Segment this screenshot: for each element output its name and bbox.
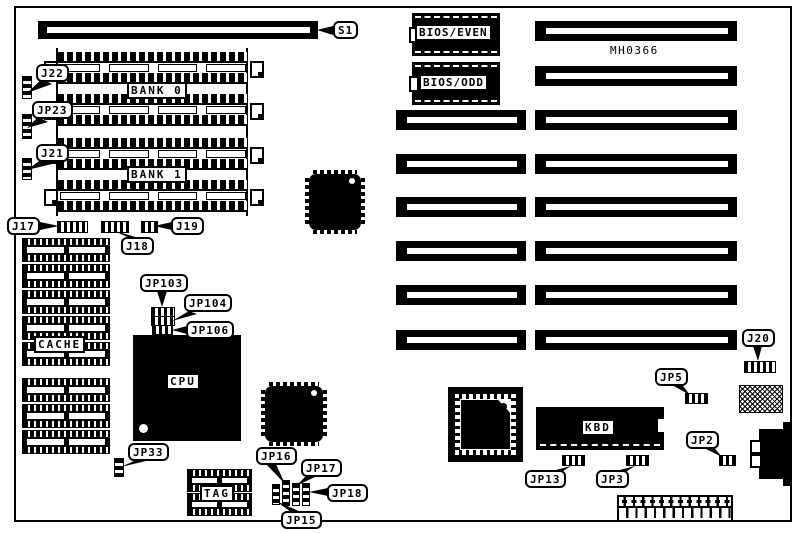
chip-notch — [658, 419, 664, 432]
callout-jp17: JP17 — [301, 459, 342, 477]
expansion-slot — [535, 154, 737, 174]
label-tag: TAG — [200, 485, 234, 502]
callout-jp3: JP3 — [596, 470, 629, 488]
jumper-j21 — [22, 158, 32, 180]
motherboard-diagram: S1 J22 JP23 J21 J17 J18 J19 JP103 JP104 … — [0, 0, 799, 533]
callout-jp33: JP33 — [128, 443, 169, 461]
jumper-jp2 — [719, 455, 736, 466]
pin-stripe — [58, 138, 248, 149]
cache-chip — [22, 404, 110, 428]
switch-s1-bar — [38, 21, 318, 39]
plcc-chip — [448, 387, 523, 462]
simm-modules — [58, 149, 248, 159]
simm-latch — [250, 103, 264, 120]
pin1-dot — [500, 403, 507, 410]
label-cache: CACHE — [34, 336, 85, 353]
expansion-slot — [396, 197, 526, 217]
callout-jp5: JP5 — [655, 368, 688, 386]
jumper-jp13 — [562, 455, 585, 466]
expansion-slot — [535, 21, 737, 41]
connector-tab — [750, 440, 762, 454]
pin1-dot — [311, 390, 317, 396]
callout-jp18: JP18 — [327, 484, 368, 502]
cache-chip — [22, 378, 110, 402]
callout-jp104: JP104 — [184, 294, 232, 312]
jumper-jp106 — [152, 325, 173, 335]
label-bios-odd: BIOS/ODD — [419, 74, 488, 91]
expansion-slot — [535, 330, 737, 350]
callout-jp106: JP106 — [186, 321, 234, 339]
callout-s1: S1 — [333, 21, 358, 39]
callout-j17: J17 — [7, 217, 40, 235]
expansion-slot — [396, 285, 526, 305]
power-connector — [617, 495, 733, 522]
simm-modules — [58, 105, 248, 115]
jumper-jp18 — [302, 483, 310, 506]
callout-jp16: JP16 — [256, 447, 297, 465]
connector-step — [783, 422, 792, 431]
pin-stripe — [58, 52, 248, 63]
callout-jp2: JP2 — [686, 431, 719, 449]
simm-latch — [250, 189, 264, 206]
simm-modules — [58, 191, 248, 201]
chip-notch — [409, 76, 419, 92]
simm-socket — [58, 180, 248, 212]
jumper-j22 — [22, 76, 32, 99]
qfp-chip — [261, 382, 327, 446]
simm-memory-area — [44, 48, 264, 216]
jumper-jp23 — [22, 114, 32, 139]
callout-j22: J22 — [36, 64, 69, 82]
simm-latch — [250, 147, 264, 164]
power-teeth — [619, 506, 731, 518]
jumper-jp16 — [282, 480, 290, 506]
jumper-j20 — [744, 361, 776, 373]
simm-latch — [44, 189, 58, 206]
jumper-jp3 — [626, 455, 649, 466]
jumper-jp5 — [685, 393, 708, 404]
expansion-slot — [396, 241, 526, 261]
callout-j18: J18 — [121, 237, 154, 255]
expansion-slot — [535, 110, 737, 130]
callout-j19: J19 — [171, 217, 204, 235]
callout-jp13: JP13 — [525, 470, 566, 488]
cache-chip — [22, 264, 110, 288]
callout-jp23: JP23 — [32, 101, 73, 119]
qfp-chip — [305, 170, 365, 234]
expansion-slot — [535, 197, 737, 217]
label-bios-even: BIOS/EVEN — [415, 24, 492, 41]
keyboard-connector — [759, 429, 790, 479]
oscillator — [739, 385, 783, 413]
connector-step — [783, 477, 792, 486]
callout-j20: J20 — [742, 329, 775, 347]
pin1-dot — [349, 178, 355, 184]
expansion-slot — [535, 66, 737, 86]
simm-modules — [58, 63, 248, 73]
callout-jp103: JP103 — [140, 274, 188, 292]
jumper-jp15 — [272, 484, 280, 505]
callout-jp15: JP15 — [281, 511, 322, 529]
expansion-slot — [535, 285, 737, 305]
board-id-text: MH0366 — [610, 44, 659, 57]
power-pins — [620, 497, 730, 506]
label-kbd: KBD — [581, 419, 615, 436]
pin-stripe — [58, 201, 248, 212]
label-cpu: CPU — [166, 373, 200, 390]
expansion-slot — [535, 241, 737, 261]
expansion-slot — [396, 110, 526, 130]
simm-latch — [250, 61, 264, 78]
jumper-j17 — [57, 221, 88, 233]
callout-j21: J21 — [36, 144, 69, 162]
connector-tab — [750, 454, 762, 468]
simm-socket — [58, 52, 248, 84]
expansion-slot — [396, 154, 526, 174]
cache-chip — [22, 290, 110, 314]
pin-stripe — [58, 115, 248, 126]
cache-chip — [22, 238, 110, 262]
label-bank0: BANK 0 — [127, 82, 187, 99]
jumper-jp33 — [114, 458, 124, 477]
pin1-dot — [139, 424, 148, 433]
cache-chip — [22, 430, 110, 454]
jumper-j19 — [141, 221, 158, 233]
expansion-slot — [396, 330, 526, 350]
jumper-jp17 — [292, 483, 300, 506]
jumper-j18 — [101, 221, 129, 233]
label-bank1: BANK 1 — [127, 166, 187, 183]
